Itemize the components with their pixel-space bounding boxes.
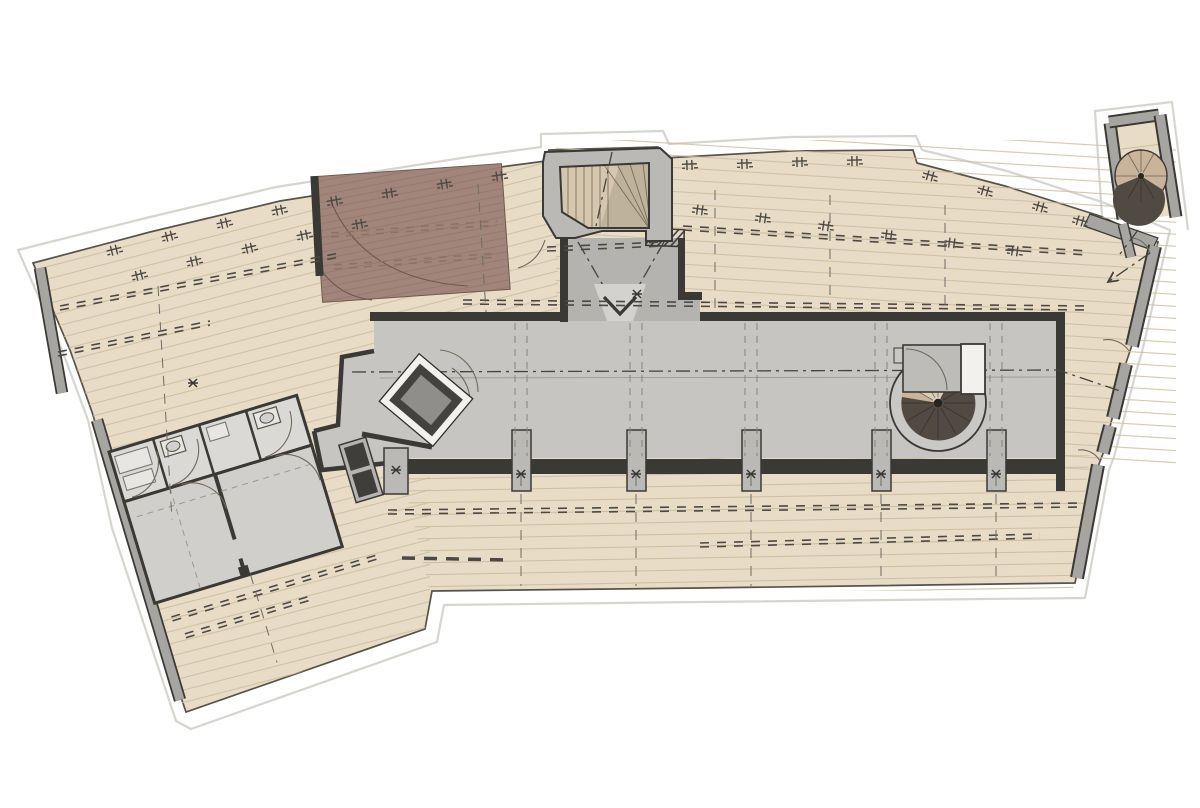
floor-plan-drawing	[0, 0, 1200, 808]
historic-floor-patch	[314, 164, 510, 303]
corridor	[314, 312, 1120, 494]
stair-landing	[903, 345, 962, 392]
cupboard	[961, 344, 985, 394]
turret-spiral-stair	[1113, 150, 1167, 226]
vestibule	[560, 228, 702, 322]
floor-plan-page	[0, 0, 1200, 808]
